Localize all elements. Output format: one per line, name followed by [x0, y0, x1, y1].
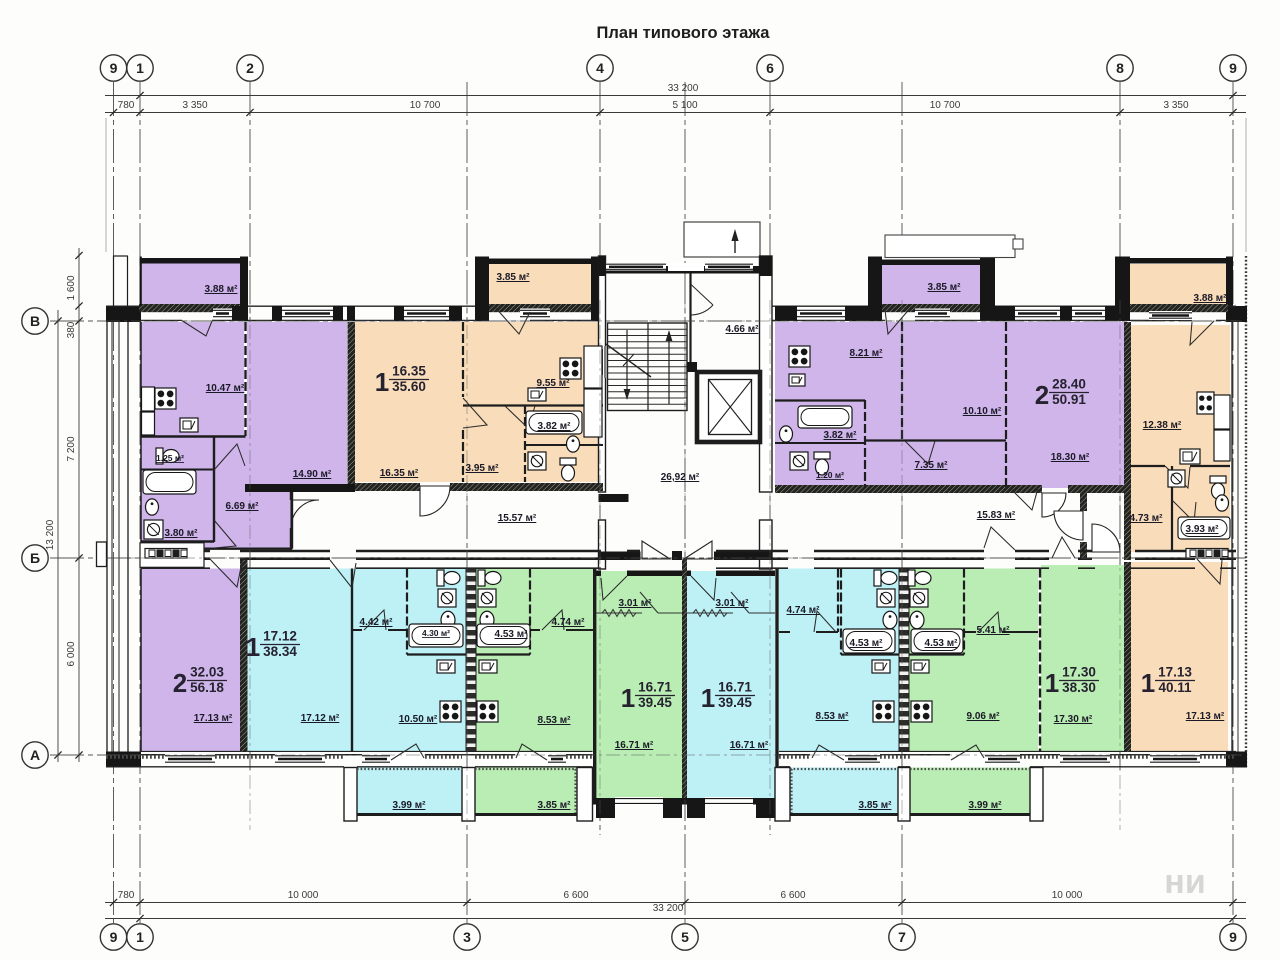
svg-text:9.06 м²: 9.06 м² [967, 711, 1001, 722]
svg-text:6: 6 [766, 60, 774, 76]
svg-text:14.90 м²: 14.90 м² [293, 469, 332, 480]
svg-text:1: 1 [621, 683, 635, 713]
svg-text:3.01 м²: 3.01 м² [716, 598, 750, 609]
svg-text:2: 2 [173, 668, 187, 698]
svg-text:12.38 м²: 12.38 м² [1143, 420, 1182, 431]
svg-text:17.13: 17.13 [1158, 665, 1192, 680]
svg-text:План типового этажа: План типового этажа [597, 24, 771, 42]
svg-text:1: 1 [1141, 668, 1155, 698]
svg-text:4.66 м²: 4.66 м² [726, 324, 760, 335]
svg-text:3: 3 [463, 929, 471, 945]
svg-text:16.35: 16.35 [392, 364, 426, 379]
svg-text:39.45: 39.45 [718, 695, 752, 710]
svg-text:16.71: 16.71 [638, 680, 672, 695]
svg-text:5: 5 [681, 929, 689, 945]
svg-text:28.40: 28.40 [1052, 377, 1086, 392]
svg-text:4.74 м²: 4.74 м² [787, 605, 821, 616]
svg-text:10 700: 10 700 [930, 100, 961, 111]
svg-text:17.12: 17.12 [263, 629, 297, 644]
svg-text:8: 8 [1116, 60, 1124, 76]
svg-text:3.80 м²: 3.80 м² [165, 528, 199, 539]
svg-text:39.45: 39.45 [638, 695, 672, 710]
svg-text:3.85 м²: 3.85 м² [538, 800, 572, 811]
svg-text:9: 9 [110, 60, 118, 76]
svg-text:780: 780 [118, 100, 135, 111]
svg-text:1.25 м²: 1.25 м² [156, 453, 184, 463]
svg-text:4.30 м²: 4.30 м² [422, 628, 450, 638]
svg-text:3.95 м²: 3.95 м² [466, 463, 500, 474]
svg-text:1: 1 [246, 632, 260, 662]
svg-text:3.85 м²: 3.85 м² [859, 800, 893, 811]
svg-text:50.91: 50.91 [1052, 392, 1086, 407]
svg-text:4.53 м²: 4.53 м² [925, 638, 959, 649]
svg-text:17.30: 17.30 [1062, 665, 1096, 680]
svg-text:9: 9 [1229, 929, 1237, 945]
svg-text:2: 2 [246, 60, 254, 76]
svg-text:4.74 м²: 4.74 м² [552, 617, 586, 628]
svg-text:10 000: 10 000 [1052, 890, 1083, 901]
svg-text:780: 780 [118, 890, 135, 901]
svg-text:8.53 м²: 8.53 м² [816, 711, 850, 722]
svg-text:3 350: 3 350 [1163, 100, 1188, 111]
svg-text:7: 7 [898, 929, 906, 945]
svg-text:3.93 м²: 3.93 м² [1186, 524, 1220, 535]
svg-text:6 000: 6 000 [66, 641, 77, 666]
svg-text:7 200: 7 200 [66, 436, 77, 461]
svg-text:Б: Б [30, 550, 40, 566]
svg-text:9: 9 [110, 929, 118, 945]
svg-text:А: А [30, 747, 40, 763]
svg-text:6 600: 6 600 [563, 890, 588, 901]
svg-text:3.82 м²: 3.82 м² [538, 421, 572, 432]
svg-text:35.60: 35.60 [392, 379, 426, 394]
svg-text:6.69 м²: 6.69 м² [226, 501, 260, 512]
svg-text:5.41 м²: 5.41 м² [977, 625, 1011, 636]
svg-text:1: 1 [701, 683, 715, 713]
svg-text:1: 1 [375, 367, 389, 397]
svg-text:4.53 м²: 4.53 м² [850, 638, 884, 649]
svg-text:17.13 м²: 17.13 м² [1186, 711, 1225, 722]
svg-text:38.30: 38.30 [1062, 680, 1096, 695]
svg-text:380: 380 [66, 321, 77, 338]
svg-text:4.73 м²: 4.73 м² [1130, 513, 1164, 524]
svg-text:2: 2 [1035, 380, 1049, 410]
svg-text:1: 1 [136, 929, 144, 945]
svg-text:ни: ни [1164, 863, 1205, 901]
svg-text:8.21 м²: 8.21 м² [850, 348, 884, 359]
svg-text:9.55 м²: 9.55 м² [537, 378, 571, 389]
svg-text:38.34: 38.34 [263, 644, 297, 659]
svg-text:10 700: 10 700 [410, 100, 441, 111]
svg-text:56.18: 56.18 [190, 680, 224, 695]
svg-text:3.85 м²: 3.85 м² [928, 282, 962, 293]
svg-text:4: 4 [596, 60, 604, 76]
svg-text:7.35 м²: 7.35 м² [915, 460, 949, 471]
svg-text:3.99 м²: 3.99 м² [393, 800, 427, 811]
svg-text:16.71 м²: 16.71 м² [730, 740, 769, 751]
svg-text:17.30 м²: 17.30 м² [1054, 714, 1093, 725]
svg-text:33 200: 33 200 [653, 903, 684, 914]
svg-text:9: 9 [1229, 60, 1237, 76]
svg-text:В: В [30, 313, 40, 329]
svg-text:18.30 м²: 18.30 м² [1051, 452, 1090, 463]
svg-text:3 350: 3 350 [182, 100, 207, 111]
svg-text:3.82 м²: 3.82 м² [824, 430, 858, 441]
svg-text:1.20 м²: 1.20 м² [816, 470, 844, 480]
svg-text:3.01 м²: 3.01 м² [619, 598, 653, 609]
svg-text:26,92 м²: 26,92 м² [661, 472, 700, 483]
svg-text:16.71: 16.71 [718, 680, 752, 695]
svg-text:1: 1 [1045, 668, 1059, 698]
svg-text:10.10 м²: 10.10 м² [963, 406, 1002, 417]
svg-text:10.47 м²: 10.47 м² [206, 383, 245, 394]
svg-text:17.12 м²: 17.12 м² [301, 713, 340, 724]
svg-text:1 600: 1 600 [66, 275, 77, 300]
svg-text:3.99 м²: 3.99 м² [969, 800, 1003, 811]
svg-text:10 000: 10 000 [288, 890, 319, 901]
svg-text:15.83 м²: 15.83 м² [977, 510, 1016, 521]
svg-text:1: 1 [136, 60, 144, 76]
svg-text:4.42 м²: 4.42 м² [360, 617, 394, 628]
svg-text:4.53 м²: 4.53 м² [495, 629, 529, 640]
svg-text:15.57 м²: 15.57 м² [498, 513, 537, 524]
svg-text:32.03: 32.03 [190, 665, 224, 680]
svg-text:13 200: 13 200 [45, 519, 56, 550]
svg-text:6 600: 6 600 [780, 890, 805, 901]
svg-text:33 200: 33 200 [668, 83, 699, 94]
svg-text:3.88 м²: 3.88 м² [1194, 293, 1228, 304]
svg-text:16.35 м²: 16.35 м² [380, 468, 419, 479]
svg-text:5 100: 5 100 [672, 100, 697, 111]
svg-text:10.50 м²: 10.50 м² [399, 714, 438, 725]
svg-text:8.53 м²: 8.53 м² [538, 715, 572, 726]
svg-text:3.85 м²: 3.85 м² [497, 272, 531, 283]
svg-text:40.11: 40.11 [1158, 680, 1192, 695]
svg-text:3.88 м²: 3.88 м² [205, 284, 239, 295]
svg-text:17.13 м²: 17.13 м² [194, 713, 233, 724]
svg-text:16.71 м²: 16.71 м² [615, 740, 654, 751]
